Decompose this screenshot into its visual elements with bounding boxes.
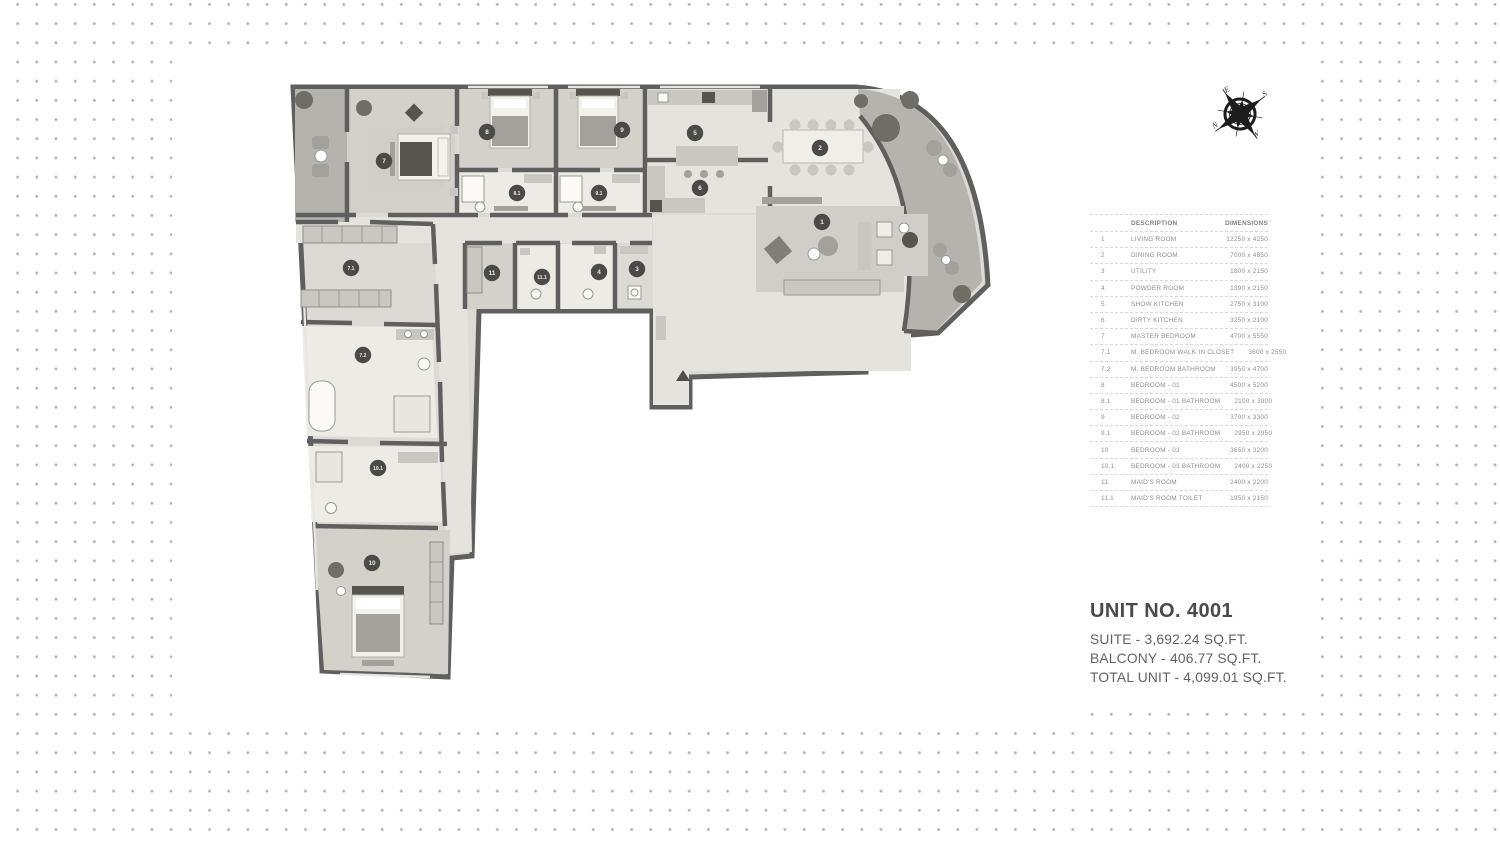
- room-number: 7: [1090, 333, 1131, 340]
- room-dimensions: 3600 x 2550: [1234, 349, 1286, 356]
- room-description: BEDROOM - 02: [1131, 414, 1216, 421]
- room-description: MASTER BEDROOM: [1131, 333, 1216, 340]
- room-number: 11: [1090, 479, 1131, 486]
- unit-title: UNIT NO. 4001: [1090, 600, 1287, 623]
- room-dimensions-table: DESCRIPTION DIMENSIONS 1LIVING ROOM12250…: [1090, 214, 1268, 507]
- table-row: 10BEDROOM - 033650 x 3200: [1090, 442, 1268, 458]
- svg-text:2: 2: [818, 145, 822, 152]
- room-dimensions: 2750 x 3100: [1216, 301, 1268, 308]
- svg-text:5: 5: [693, 130, 697, 137]
- room-number: 8: [1090, 382, 1131, 389]
- compass-north-label: N: [1210, 120, 1221, 131]
- svg-text:9: 9: [620, 127, 624, 134]
- room-badge: 7.2: [355, 347, 371, 363]
- table-row: 2DINING ROOM7000 x 4850: [1090, 248, 1268, 264]
- svg-text:8.1: 8.1: [514, 191, 521, 197]
- room-number: 1: [1090, 236, 1131, 243]
- room-dimensions: 3950 x 4700: [1216, 366, 1268, 373]
- table-row: 7MASTER BEDROOM4700 x 5550: [1090, 329, 1268, 345]
- room-number: 5: [1090, 301, 1131, 308]
- svg-text:9.1: 9.1: [596, 191, 603, 197]
- room-badge: 7: [376, 153, 392, 169]
- room-dimensions: 1390 x 2150: [1216, 285, 1268, 292]
- room-dimensions: 3700 x 3300: [1216, 414, 1268, 421]
- room-dimensions: 1800 x 2150: [1216, 268, 1268, 275]
- svg-text:10: 10: [368, 560, 376, 567]
- room-description: LIVING ROOM: [1131, 236, 1216, 243]
- room-description: M. BEDROOM WALK IN CLOSET: [1131, 349, 1234, 356]
- room-dimensions: 4700 x 5550: [1216, 333, 1268, 340]
- room-number: 8.1: [1090, 398, 1131, 405]
- room-badge: 9.1: [591, 185, 607, 201]
- room-number: 11.1: [1090, 495, 1131, 502]
- room-description: DIRTY KITCHEN: [1131, 317, 1216, 324]
- unit-total-area: TOTAL UNIT - 4,099.01 SQ.FT.: [1090, 668, 1287, 687]
- table-header-row: DESCRIPTION DIMENSIONS: [1090, 214, 1268, 232]
- compass-rose-icon: E S N W: [1200, 74, 1280, 154]
- room-badge: 11.1: [534, 269, 550, 285]
- room-description: BEDROOM - 03 BATHROOM: [1131, 463, 1220, 470]
- table-row: 6DIRTY KITCHEN3250 x 2100: [1090, 313, 1268, 329]
- table-row: 9.1BEDROOM - 02 BATHROOM2950 x 2950: [1090, 426, 1268, 442]
- page: 12345677.17.288.199.11010.11111.1 E S N …: [0, 0, 1500, 842]
- svg-text:3: 3: [635, 266, 639, 273]
- room-dimensions: 1950 x 2150: [1216, 495, 1268, 502]
- table-header-dimensions: DIMENSIONS: [1216, 220, 1268, 227]
- table-row: 10.1BEDROOM - 03 BATHROOM2400 x 2250: [1090, 459, 1268, 475]
- svg-text:4: 4: [597, 269, 601, 276]
- svg-text:7: 7: [382, 158, 386, 165]
- table-row: 5SHOW KITCHEN2750 x 3100: [1090, 297, 1268, 313]
- room-description: BEDROOM - 03: [1131, 447, 1216, 454]
- room-number: 4: [1090, 285, 1131, 292]
- room-description: BEDROOM - 01 BATHROOM: [1131, 398, 1220, 405]
- svg-text:6: 6: [698, 185, 702, 192]
- room-dimensions: 3650 x 3200: [1216, 447, 1268, 454]
- table-row: 8.1BEDROOM - 01 BATHROOM2100 x 3800: [1090, 394, 1268, 410]
- room-dimensions: 3250 x 2100: [1216, 317, 1268, 324]
- room-description: BEDROOM - 02 BATHROOM: [1131, 430, 1220, 437]
- table-row: 9BEDROOM - 023700 x 3300: [1090, 410, 1268, 426]
- room-description: UTILITY: [1131, 268, 1216, 275]
- table-row: 7.1M. BEDROOM WALK IN CLOSET3600 x 2550: [1090, 345, 1268, 361]
- table-row: 7.2M. BEDROOM BATHROOM3950 x 4700: [1090, 362, 1268, 378]
- unit-suite-area: SUITE - 3,692.24 SQ.FT.: [1090, 630, 1287, 649]
- room-description: M. BEDROOM BATHROOM: [1131, 366, 1216, 373]
- compass-south-label: S: [1261, 89, 1269, 99]
- room-number: 10: [1090, 447, 1131, 454]
- room-dimensions: 2400 x 2200: [1216, 479, 1268, 486]
- table-row: 4POWDER ROOM1390 x 2150: [1090, 281, 1268, 297]
- room-number: 2: [1090, 252, 1131, 259]
- table-row: 8BEDROOM - 014500 x 5200: [1090, 378, 1268, 394]
- room-description: POWDER ROOM: [1131, 285, 1216, 292]
- room-dimensions: 2100 x 3800: [1220, 398, 1272, 405]
- room-dimensions: 12250 x 4250: [1216, 236, 1268, 243]
- unit-balcony-area: BALCONY - 406.77 SQ.FT.: [1090, 649, 1287, 668]
- table-body: 1LIVING ROOM12250 x 42502DINING ROOM7000…: [1090, 232, 1268, 507]
- room-dimensions: 4500 x 5200: [1216, 382, 1268, 389]
- room-badge: 9: [614, 122, 630, 138]
- room-badge: 4: [591, 264, 607, 280]
- room-dimensions: 7000 x 4850: [1216, 252, 1268, 259]
- room-badge: 10: [364, 555, 380, 571]
- unit-info: UNIT NO. 4001 SUITE - 3,692.24 SQ.FT. BA…: [1090, 600, 1287, 687]
- room-number: 7.1: [1090, 349, 1131, 356]
- room-number: 9: [1090, 414, 1131, 421]
- svg-text:11: 11: [489, 270, 496, 277]
- svg-text:11.1: 11.1: [537, 275, 547, 281]
- room-dimensions: 2400 x 2250: [1220, 463, 1272, 470]
- table-row: 1LIVING ROOM12250 x 4250: [1090, 232, 1268, 248]
- room-badge: 6: [692, 180, 708, 196]
- room-description: SHOW KITCHEN: [1131, 301, 1216, 308]
- room-number: 6: [1090, 317, 1131, 324]
- table-row: 11MAID'S ROOM2400 x 2200: [1090, 475, 1268, 491]
- room-badge: 5: [687, 125, 703, 141]
- room-description: DINING ROOM: [1131, 252, 1216, 259]
- room-description: MAID'S ROOM TOILET: [1131, 495, 1216, 502]
- table-header-description: DESCRIPTION: [1131, 220, 1216, 227]
- room-number: 10.1: [1090, 463, 1131, 470]
- room-description: MAID'S ROOM: [1131, 479, 1216, 486]
- room-number: 9.1: [1090, 430, 1131, 437]
- compass-east-label: E: [1222, 84, 1232, 95]
- room-badge: 8.1: [509, 185, 525, 201]
- room-description: BEDROOM - 01: [1131, 382, 1216, 389]
- svg-text:7.1: 7.1: [348, 266, 355, 272]
- room-badge: 7.1: [343, 260, 359, 276]
- room-badge: 3: [629, 261, 645, 277]
- svg-text:8: 8: [485, 129, 489, 136]
- room-badge: 2: [812, 140, 828, 156]
- room-badge: 11: [484, 265, 500, 281]
- room-number: 7.2: [1090, 366, 1131, 373]
- table-row: 3UTILITY1800 x 2150: [1090, 264, 1268, 280]
- room-badge: 10.1: [370, 460, 386, 476]
- room-badge: 8: [479, 124, 495, 140]
- svg-text:7.2: 7.2: [360, 353, 367, 359]
- room-badge: 1: [814, 214, 830, 230]
- floor-plan: 12345677.17.288.199.11010.11111.1: [280, 75, 1000, 690]
- svg-text:10.1: 10.1: [373, 466, 383, 472]
- room-number: 3: [1090, 268, 1131, 275]
- table-row: 11.1MAID'S ROOM TOILET1950 x 2150: [1090, 491, 1268, 507]
- room-dimensions: 2950 x 2950: [1220, 430, 1272, 437]
- svg-text:1: 1: [820, 219, 824, 226]
